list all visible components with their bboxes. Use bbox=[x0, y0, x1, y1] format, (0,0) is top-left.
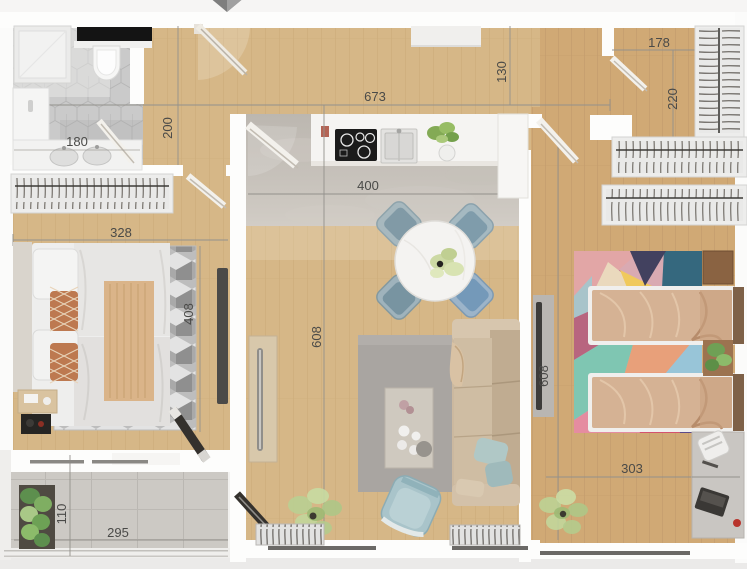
svg-text:608: 608 bbox=[536, 365, 551, 387]
svg-text:400: 400 bbox=[357, 178, 379, 193]
svg-text:180: 180 bbox=[66, 134, 88, 149]
svg-text:408: 408 bbox=[181, 303, 196, 325]
svg-text:110: 110 bbox=[54, 504, 69, 525]
svg-text:130: 130 bbox=[494, 61, 509, 83]
svg-text:200: 200 bbox=[160, 117, 175, 139]
svg-text:295: 295 bbox=[107, 525, 129, 540]
svg-text:328: 328 bbox=[110, 225, 132, 240]
svg-text:303: 303 bbox=[621, 461, 643, 476]
svg-text:178: 178 bbox=[648, 35, 670, 50]
svg-text:673: 673 bbox=[364, 89, 386, 104]
svg-text:220: 220 bbox=[665, 88, 680, 110]
svg-text:608: 608 bbox=[309, 326, 324, 348]
